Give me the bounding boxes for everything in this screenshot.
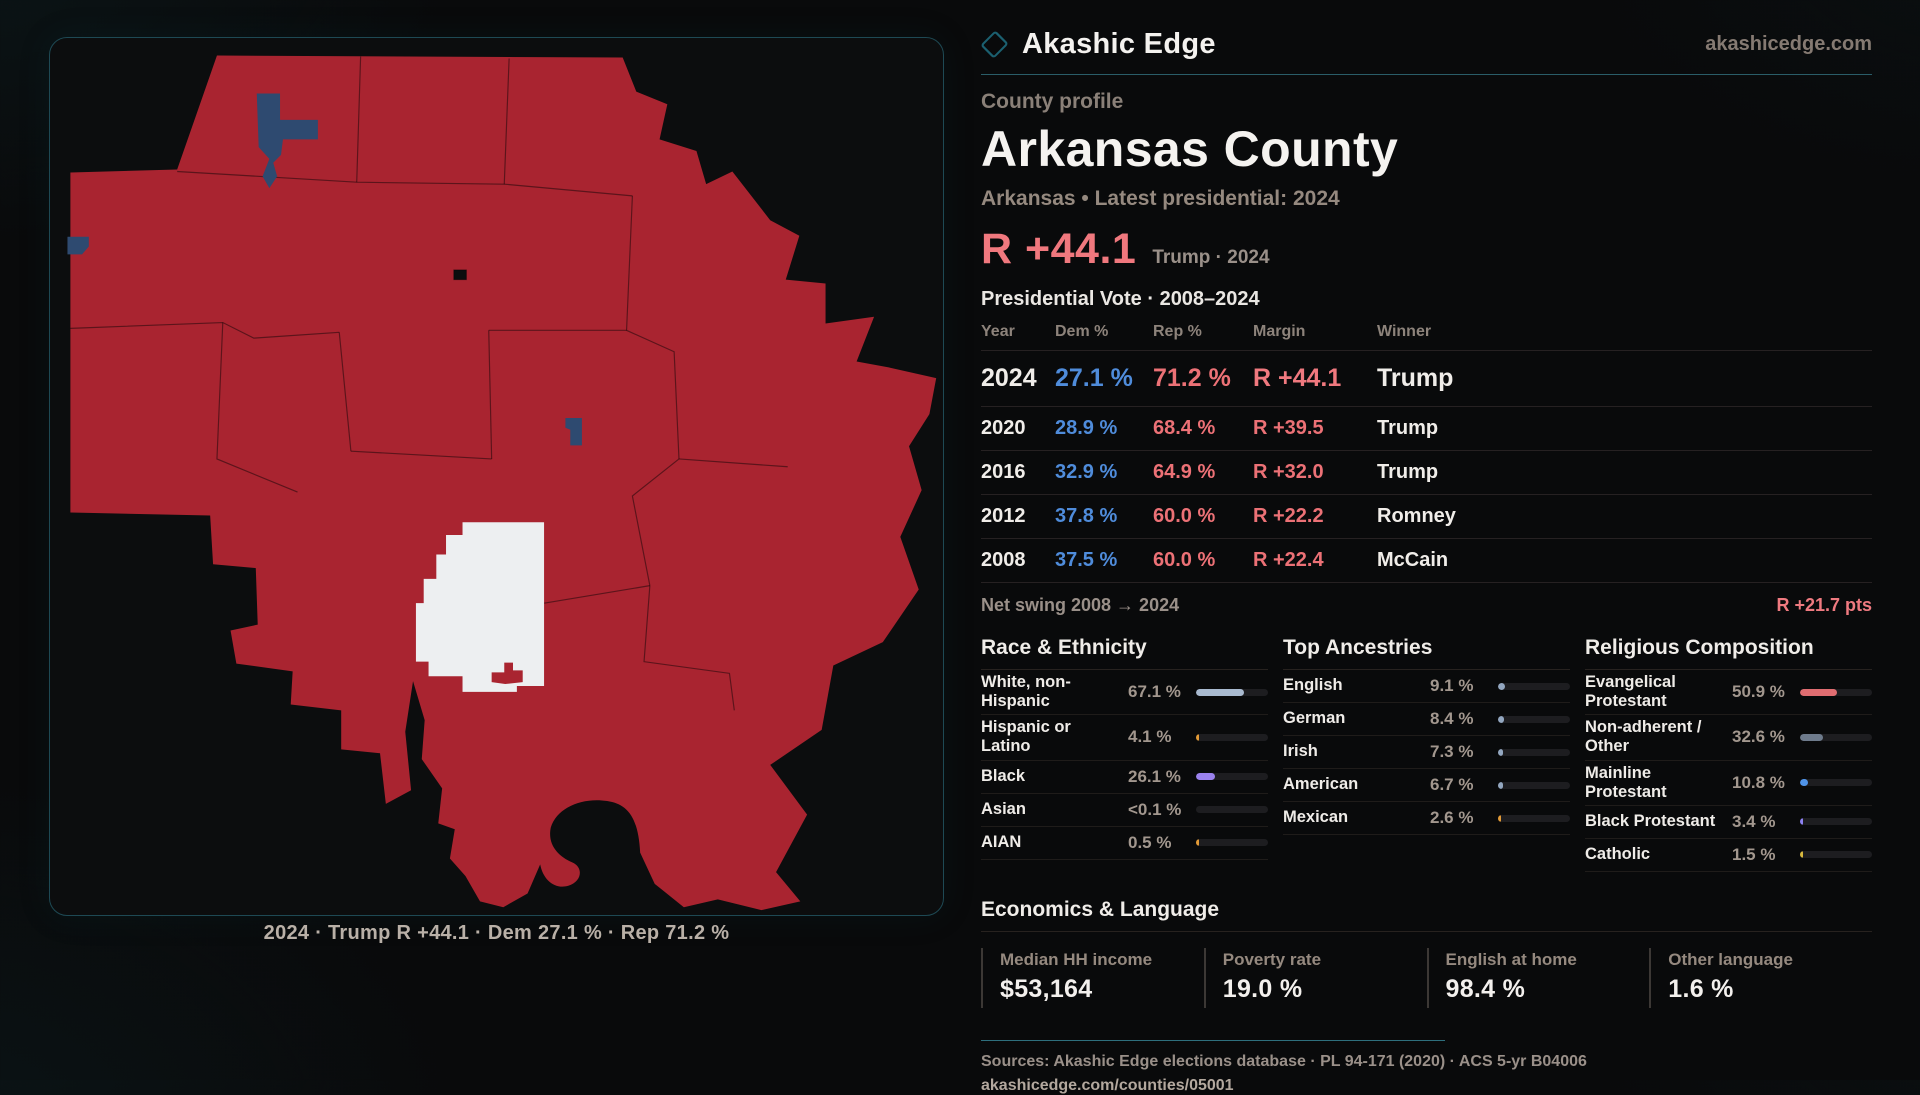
stat-value: 19.0 % [1223, 975, 1427, 1004]
cell-winner: Trump [1377, 417, 1872, 440]
app-header: Akashic Edge akashicedge.com [981, 28, 1872, 61]
ancestry-label: American [1283, 775, 1430, 794]
religion-bar [1800, 779, 1872, 786]
stat-label: Median HH income [1000, 950, 1204, 970]
stat-label: Poverty rate [1223, 950, 1427, 970]
cell-year: 2012 [981, 505, 1055, 528]
table-row: 2016 32.9 % 64.9 % R +32.0 Trump [981, 451, 1872, 495]
religion-column: Religious Composition Evangelical Protes… [1585, 636, 1872, 872]
race-bar [1196, 734, 1268, 741]
stat-label: English at home [1446, 950, 1650, 970]
race-value: 4.1 % [1128, 727, 1196, 747]
religion-value: 1.5 % [1732, 845, 1800, 865]
ancestry-value: 9.1 % [1430, 676, 1498, 696]
col-year: Year [981, 323, 1055, 341]
race-title: Race & Ethnicity [981, 636, 1268, 670]
col-winner: Winner [1377, 323, 1872, 341]
list-item: Catholic 1.5 % [1585, 839, 1872, 872]
list-item: Evangelical Protestant 50.9 % [1585, 670, 1872, 715]
race-bar [1196, 773, 1268, 780]
table-row: 2024 27.1 % 71.2 % R +44.1 Trump [981, 351, 1872, 407]
race-value: 67.1 % [1128, 682, 1196, 702]
ancestry-label: Mexican [1283, 808, 1430, 827]
cell-dem: 28.9 % [1055, 417, 1153, 440]
page-subtitle: Arkansas • Latest presidential: 2024 [981, 187, 1872, 211]
header-divider [981, 74, 1872, 75]
cell-rep: 60.0 % [1153, 505, 1253, 528]
race-bar [1196, 839, 1268, 846]
county-map-panel [49, 37, 944, 916]
cell-rep: 64.9 % [1153, 461, 1253, 484]
list-item: Black Protestant 3.4 % [1585, 806, 1872, 839]
stat-value: 1.6 % [1668, 975, 1872, 1004]
race-label: Asian [981, 800, 1128, 819]
cell-dem: 32.9 % [1055, 461, 1153, 484]
col-margin: Margin [1253, 323, 1377, 341]
religion-value: 50.9 % [1732, 682, 1800, 702]
religion-label: Evangelical Protestant [1585, 673, 1732, 711]
ancestry-bar [1498, 782, 1570, 789]
ancestry-value: 2.6 % [1430, 808, 1498, 828]
race-value: 26.1 % [1128, 767, 1196, 787]
cell-margin: R +22.4 [1253, 549, 1377, 572]
margin-caption: Trump · 2024 [1152, 247, 1269, 269]
list-item: German 8.4 % [1283, 703, 1570, 736]
religion-bar [1800, 851, 1872, 858]
race-label: AIAN [981, 833, 1128, 852]
cell-rep: 60.0 % [1153, 549, 1253, 572]
margin-value: R +44.1 [981, 225, 1136, 274]
cell-margin: R +39.5 [1253, 417, 1377, 440]
list-item: Irish 7.3 % [1283, 736, 1570, 769]
footer: Sources: Akashic Edge elections database… [981, 1040, 1872, 1095]
ancestry-label: English [1283, 676, 1430, 695]
stat-poverty-rate: Poverty rate 19.0 % [1204, 948, 1427, 1008]
demographics-section: Race & Ethnicity White, non-Hispanic 67.… [981, 636, 1872, 872]
economics-section: Economics & Language Median HH income $5… [981, 898, 1872, 1008]
eyebrow-label: County profile [981, 90, 1872, 114]
vote-table-header: Year Dem % Rep % Margin Winner [981, 323, 1872, 351]
list-item: Black 26.1 % [981, 761, 1268, 794]
race-bar [1196, 806, 1268, 813]
race-label: Hispanic or Latino [981, 718, 1128, 756]
cell-winner: Trump [1377, 461, 1872, 484]
religion-label: Mainline Protestant [1585, 764, 1732, 802]
county-permalink[interactable]: akashicedge.com/counties/05001 [981, 1077, 1872, 1095]
ancestry-bar [1498, 683, 1570, 690]
religion-value: 10.8 % [1732, 773, 1800, 793]
cell-rep: 68.4 % [1153, 417, 1253, 440]
religion-value: 3.4 % [1732, 812, 1800, 832]
cell-winner: McCain [1377, 549, 1872, 572]
race-column: Race & Ethnicity White, non-Hispanic 67.… [981, 636, 1268, 872]
cell-dem: 37.5 % [1055, 549, 1153, 572]
ancestry-value: 7.3 % [1430, 742, 1498, 762]
col-dem: Dem % [1055, 323, 1153, 341]
list-item: Non-adherent / Other 32.6 % [1585, 715, 1872, 760]
cell-dem: 37.8 % [1055, 505, 1153, 528]
brand-name: Akashic Edge [1022, 28, 1705, 61]
cell-rep: 71.2 % [1153, 364, 1253, 393]
cell-dem: 27.1 % [1055, 364, 1153, 393]
county-precinct-map [50, 38, 943, 915]
religion-title: Religious Composition [1585, 636, 1872, 670]
diamond-logo-icon [980, 30, 1008, 58]
religion-bar [1800, 818, 1872, 825]
cell-year: 2008 [981, 549, 1055, 572]
list-item: AIAN 0.5 % [981, 827, 1268, 860]
economics-stats: Median HH income $53,164 Poverty rate 19… [981, 948, 1872, 1008]
list-item: Hispanic or Latino 4.1 % [981, 715, 1268, 760]
map-caption: 2024 · Trump R +44.1 · Dem 27.1 % · Rep … [49, 922, 944, 945]
list-item: English 9.1 % [1283, 670, 1570, 703]
ancestry-column: Top Ancestries English 9.1 % German 8.4 … [1283, 636, 1570, 872]
religion-label: Black Protestant [1585, 812, 1732, 831]
religion-value: 32.6 % [1732, 727, 1800, 747]
race-bar [1196, 689, 1268, 696]
religion-label: Non-adherent / Other [1585, 718, 1732, 756]
table-row: 2008 37.5 % 60.0 % R +22.4 McCain [981, 539, 1872, 583]
list-item: Asian <0.1 % [981, 794, 1268, 827]
religion-label: Catholic [1585, 845, 1732, 864]
stat-other-language: Other language 1.6 % [1649, 948, 1872, 1008]
brand-domain-link[interactable]: akashicedge.com [1705, 33, 1872, 56]
stat-value: 98.4 % [1446, 975, 1650, 1004]
ancestry-bar [1498, 749, 1570, 756]
list-item: Mexican 2.6 % [1283, 802, 1570, 835]
stat-value: $53,164 [1000, 975, 1204, 1004]
cell-margin: R +44.1 [1253, 364, 1377, 393]
cell-year: 2024 [981, 364, 1055, 393]
table-row: 2020 28.9 % 68.4 % R +39.5 Trump [981, 407, 1872, 451]
cell-winner: Trump [1377, 364, 1872, 393]
footer-divider [981, 1040, 1445, 1041]
map-hole [454, 270, 467, 280]
sources-text: Sources: Akashic Edge elections database… [981, 1053, 1872, 1071]
table-row: 2012 37.8 % 60.0 % R +22.2 Romney [981, 495, 1872, 539]
race-value: <0.1 % [1128, 800, 1196, 820]
net-swing-label: Net swing 2008 → 2024 [981, 595, 1179, 616]
race-label: Black [981, 767, 1128, 786]
list-item: Mainline Protestant 10.8 % [1585, 761, 1872, 806]
ancestry-bar [1498, 815, 1570, 822]
economics-title: Economics & Language [981, 898, 1872, 922]
latest-margin: R +44.1 Trump · 2024 [981, 225, 1872, 274]
list-item: American 6.7 % [1283, 769, 1570, 802]
ancestry-label: German [1283, 709, 1430, 728]
religion-bar [1800, 734, 1872, 741]
ancestry-title: Top Ancestries [1283, 636, 1570, 670]
cell-margin: R +32.0 [1253, 461, 1377, 484]
county-profile-panel: Akashic Edge akashicedge.com County prof… [981, 28, 1872, 1095]
ancestry-value: 6.7 % [1430, 775, 1498, 795]
cell-winner: Romney [1377, 505, 1872, 528]
stat-median-income: Median HH income $53,164 [981, 948, 1204, 1008]
cell-year: 2020 [981, 417, 1055, 440]
net-swing-row: Net swing 2008 → 2024 R +21.7 pts [981, 583, 1872, 616]
race-value: 0.5 % [1128, 833, 1196, 853]
ancestry-value: 8.4 % [1430, 709, 1498, 729]
cell-margin: R +22.2 [1253, 505, 1377, 528]
religion-bar [1800, 689, 1872, 696]
stat-label: Other language [1668, 950, 1872, 970]
race-label: White, non-Hispanic [981, 673, 1128, 711]
ancestry-bar [1498, 716, 1570, 723]
list-item: White, non-Hispanic 67.1 % [981, 670, 1268, 715]
stat-english-at-home: English at home 98.4 % [1427, 948, 1650, 1008]
economics-divider [981, 931, 1872, 932]
page-title: Arkansas County [981, 120, 1872, 178]
col-rep: Rep % [1153, 323, 1253, 341]
cell-year: 2016 [981, 461, 1055, 484]
net-swing-value: R +21.7 pts [1776, 595, 1872, 616]
vote-table-title: Presidential Vote · 2008–2024 [981, 288, 1872, 311]
ancestry-label: Irish [1283, 742, 1430, 761]
